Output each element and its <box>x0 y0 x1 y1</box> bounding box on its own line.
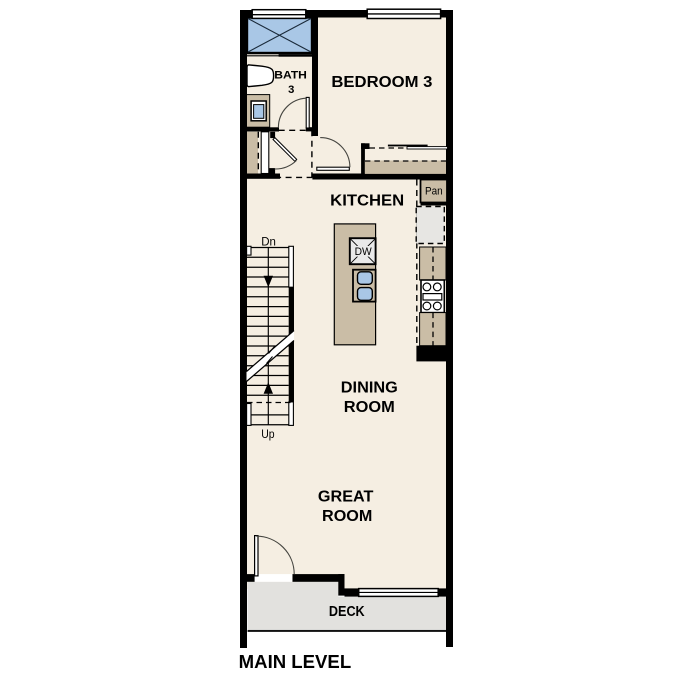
svg-text:KITCHEN: KITCHEN <box>330 192 404 209</box>
svg-text:3: 3 <box>288 84 294 96</box>
svg-text:DECK: DECK <box>329 604 365 620</box>
svg-text:ROOM: ROOM <box>322 508 372 525</box>
svg-text:DINING: DINING <box>341 379 398 396</box>
svg-text:Pan: Pan <box>425 186 443 198</box>
svg-text:BEDROOM 3: BEDROOM 3 <box>331 74 432 91</box>
svg-text:Dn: Dn <box>261 234 276 248</box>
svg-text:ROOM: ROOM <box>344 399 395 416</box>
svg-text:MAIN LEVEL: MAIN LEVEL <box>239 652 352 672</box>
svg-text:GREAT: GREAT <box>318 489 374 506</box>
svg-text:Up: Up <box>261 427 275 441</box>
svg-text:BATH: BATH <box>274 69 307 81</box>
svg-text:DW: DW <box>355 246 372 258</box>
